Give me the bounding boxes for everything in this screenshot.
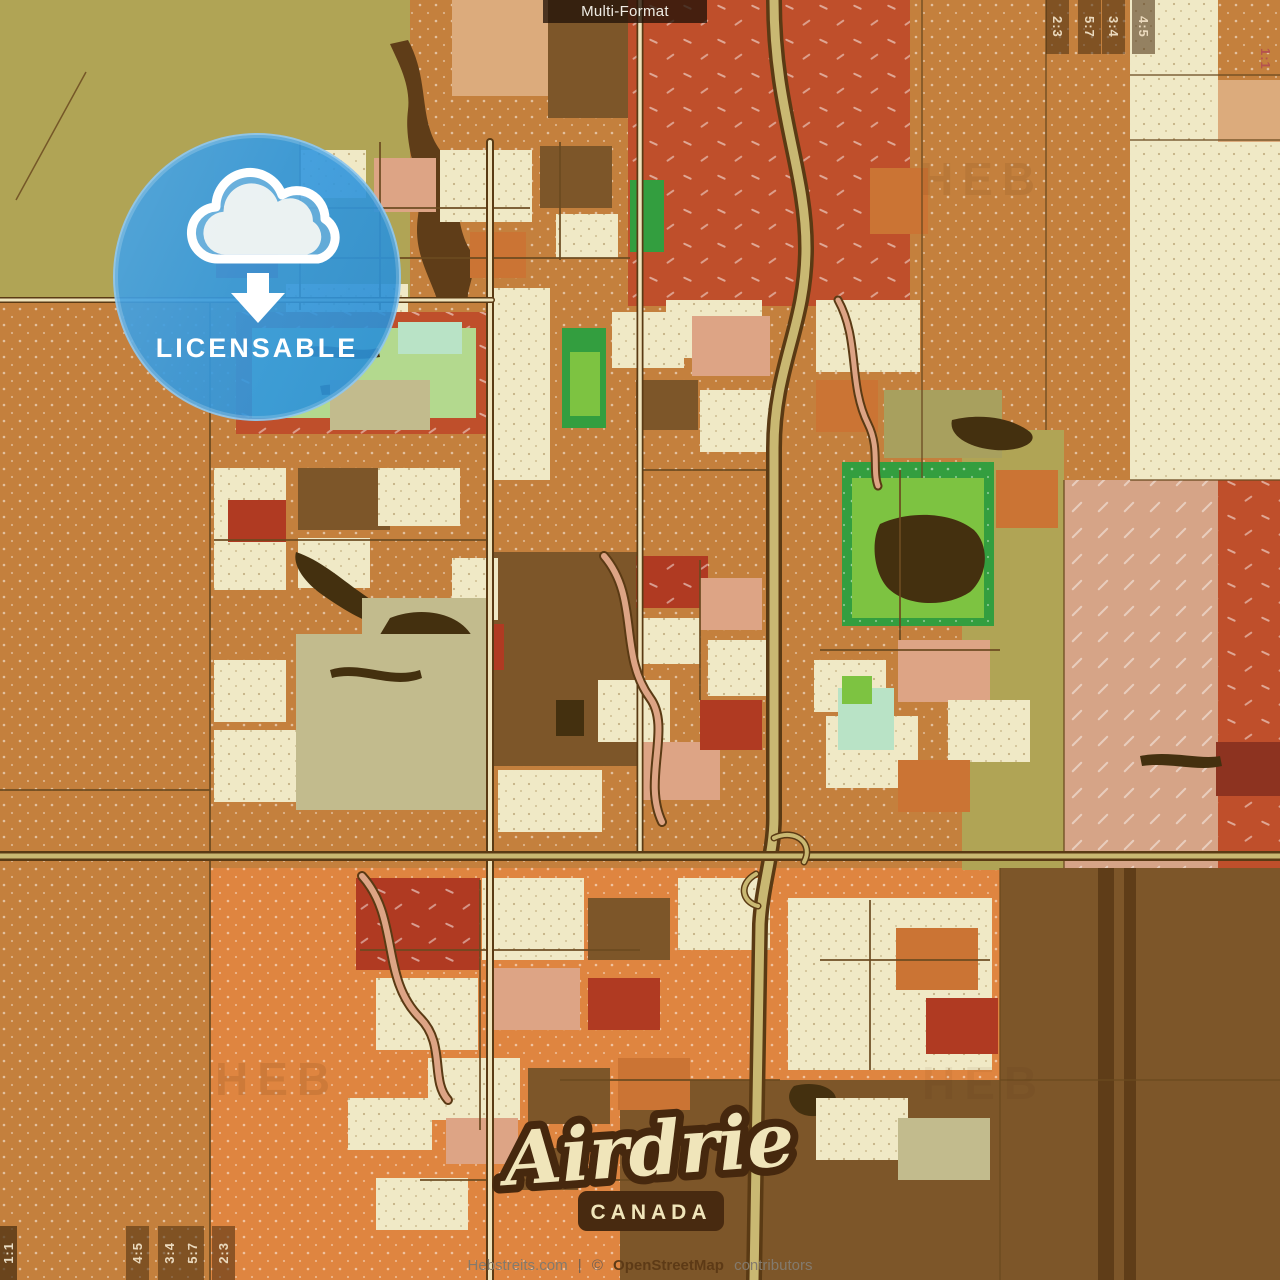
country-label: CANADA [591, 1201, 712, 1224]
ratio-label: 3:4 [1106, 16, 1121, 38]
map-preview: Multi-Format 2:35:73:44:5 1:1 4:53:45:72… [0, 0, 1280, 1280]
ratio-strip: 4:5 [1132, 0, 1155, 54]
attribution-bar: Hebstreits.com | © OpenStreetMap contrib… [0, 1257, 1280, 1274]
hebstreits-watermark: HEB [922, 1056, 1046, 1110]
ratio-label: 4:5 [1136, 16, 1151, 38]
format-badge: Multi-Format [543, 0, 707, 23]
copyright-symbol: © [592, 1257, 603, 1274]
attribution-separator: | [578, 1257, 582, 1274]
licensable-label: LICENSABLE [115, 333, 399, 364]
ratio-strip: 2:3 [1046, 0, 1069, 54]
hebstreits-watermark: HEB [920, 152, 1044, 206]
ratio-label-1-1-top-right: 1:1 [1258, 48, 1273, 70]
map-title-group: Airdrie CANADA [400, 1095, 900, 1280]
osm-contributors-link[interactable]: contributors [734, 1257, 812, 1274]
attribution-site-link[interactable]: Hebstreits.com [468, 1257, 568, 1274]
licensable-badge[interactable]: LICENSABLE [113, 133, 401, 421]
ratio-strip: 3:4 [1102, 0, 1125, 54]
ratio-label: 5:7 [1082, 16, 1097, 38]
cloud-download-icon [169, 161, 345, 334]
down-arrow-icon [231, 273, 285, 323]
city-title: Airdrie [495, 1097, 797, 1203]
osm-link[interactable]: OpenStreetMap [613, 1257, 724, 1274]
hebstreits-watermark: HEB [215, 1052, 339, 1106]
ratio-label: 2:3 [1050, 16, 1065, 38]
ratio-strip: 5:7 [1078, 0, 1101, 54]
